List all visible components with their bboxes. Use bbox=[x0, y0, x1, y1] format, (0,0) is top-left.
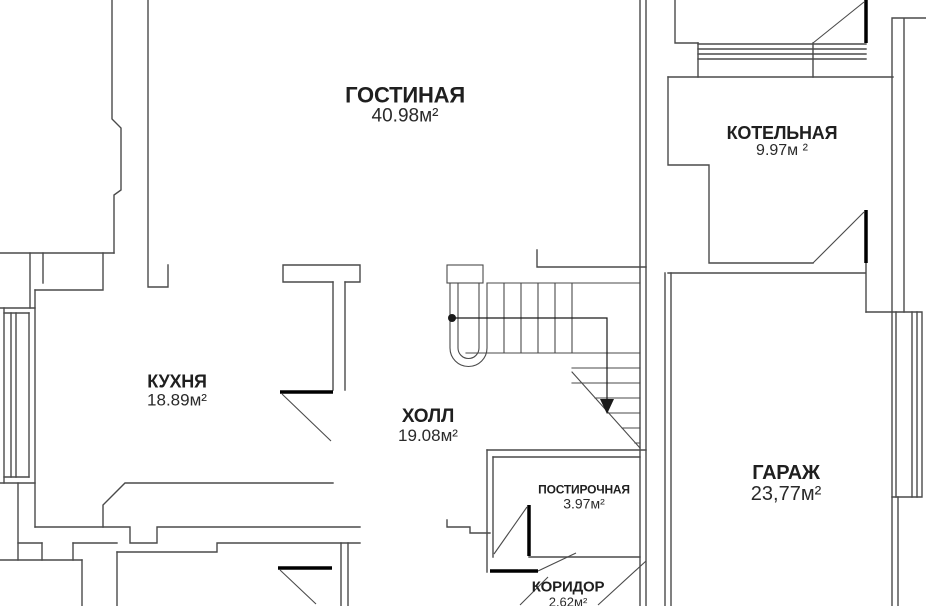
room-label-living-room: ГОСТИНАЯ 40.98м² bbox=[345, 83, 465, 126]
room-area-boiler-room: 9.97м ² bbox=[727, 143, 838, 160]
room-area-garage: 23,77м² bbox=[751, 484, 821, 505]
room-name-kitchen: КУХНЯ bbox=[147, 373, 207, 392]
room-label-kitchen: КУХНЯ 18.89м² bbox=[147, 373, 207, 410]
room-name-garage: ГАРАЖ bbox=[751, 463, 821, 484]
room-area-corridor: 2.62м² bbox=[532, 595, 605, 606]
room-name-boiler-room: КОТЕЛЬНАЯ bbox=[727, 124, 838, 143]
room-area-kitchen: 18.89м² bbox=[147, 392, 207, 410]
room-area-laundry: 3.97м² bbox=[538, 496, 630, 511]
room-name-corridor: КОРИДОР bbox=[532, 579, 605, 595]
room-label-hall: ХОЛЛ 19.08м² bbox=[398, 407, 458, 445]
room-name-living-room: ГОСТИНАЯ bbox=[345, 83, 465, 106]
room-name-hall: ХОЛЛ bbox=[398, 407, 458, 427]
room-label-boiler-room: КОТЕЛЬНАЯ 9.97м ² bbox=[727, 124, 838, 160]
floor-plan: ГОСТИНАЯ 40.98м² КОТЕЛЬНАЯ 9.97м ² КУХНЯ… bbox=[0, 0, 926, 606]
room-label-garage: ГАРАЖ 23,77м² bbox=[751, 463, 821, 505]
room-area-living-room: 40.98м² bbox=[345, 107, 465, 127]
stairs-direction-arrow bbox=[448, 314, 614, 414]
room-label-corridor: КОРИДОР 2.62м² bbox=[532, 579, 605, 606]
room-label-laundry: ПОСТИРОЧНАЯ 3.97м² bbox=[538, 483, 630, 510]
room-area-hall: 19.08м² bbox=[398, 427, 458, 445]
room-name-laundry: ПОСТИРОЧНАЯ bbox=[538, 483, 630, 496]
staircase bbox=[447, 265, 640, 448]
